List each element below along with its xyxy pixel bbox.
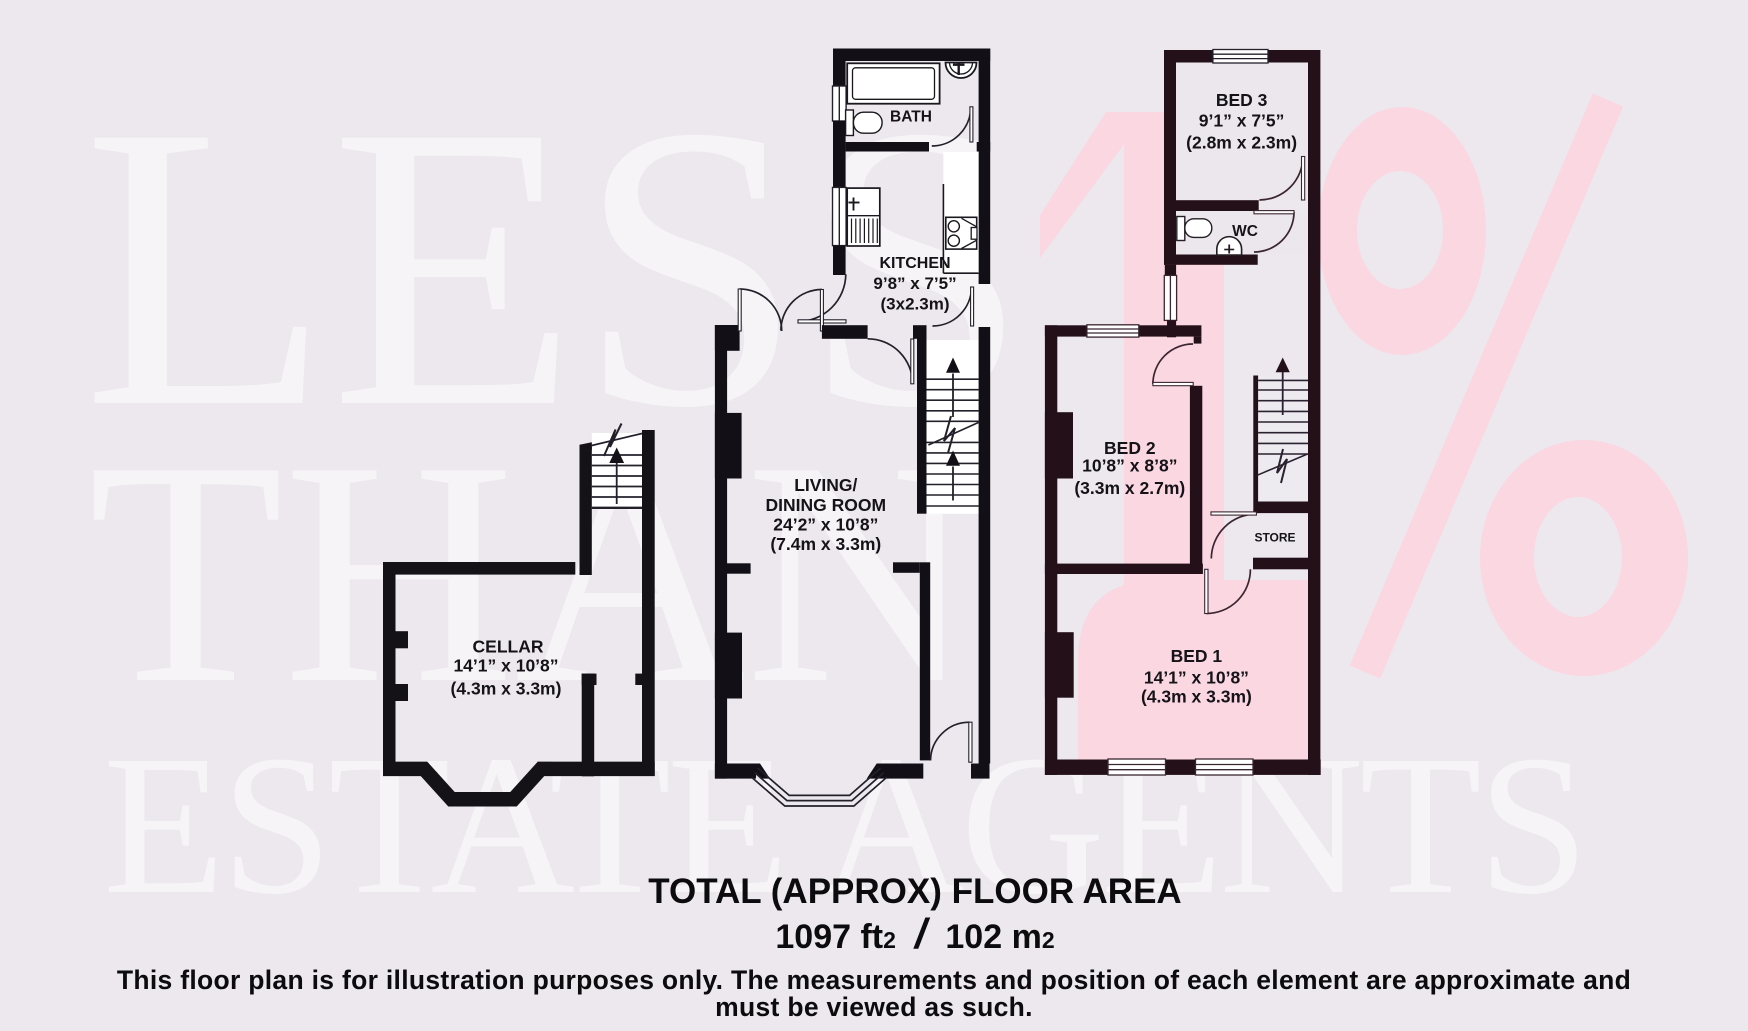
svg-text:(4.3m x 3.3m): (4.3m x 3.3m): [451, 679, 562, 699]
svg-text:24’2” x 10’8”: 24’2” x 10’8”: [773, 515, 878, 535]
svg-text:9’8” x 7’5”: 9’8” x 7’5”: [873, 274, 956, 293]
svg-text:(3.3m x 2.7m): (3.3m x 2.7m): [1074, 478, 1185, 498]
svg-text:BED 3: BED 3: [1216, 90, 1268, 110]
svg-text:(2.8m x 2.3m): (2.8m x 2.3m): [1186, 133, 1297, 153]
svg-text:WC: WC: [1232, 223, 1258, 240]
svg-text:14’1” x 10’8”: 14’1” x 10’8”: [453, 656, 558, 676]
svg-text:CELLAR: CELLAR: [473, 637, 544, 657]
svg-text:14’1” x 10’8”: 14’1” x 10’8”: [1144, 668, 1249, 688]
svg-text:(4.3m x 3.3m): (4.3m x 3.3m): [1141, 687, 1252, 707]
svg-text:BED 1: BED 1: [1171, 646, 1223, 666]
svg-text:This floor plan is for illustr: This floor plan is for illustration purp…: [117, 965, 1631, 995]
svg-text:STORE: STORE: [1254, 531, 1295, 545]
svg-text:LIVING/: LIVING/: [794, 475, 857, 495]
svg-text:(3x2.3m): (3x2.3m): [881, 295, 950, 314]
svg-text:BATH: BATH: [890, 109, 932, 126]
svg-text:(7.4m x 3.3m): (7.4m x 3.3m): [770, 534, 881, 554]
svg-text:TOTAL (APPROX) FLOOR AREA: TOTAL (APPROX) FLOOR AREA: [648, 872, 1181, 911]
svg-text:must be viewed as such.: must be viewed as such.: [715, 992, 1033, 1022]
svg-text:DINING ROOM: DINING ROOM: [766, 495, 887, 515]
svg-text:9’1” x 7’5”: 9’1” x 7’5”: [1199, 111, 1285, 131]
svg-text:1097 ft2 / 102 m2: 1097 ft2 / 102 m2: [775, 910, 1054, 957]
svg-text:KITCHEN: KITCHEN: [879, 255, 950, 272]
svg-text:10’8” x 8’8”: 10’8” x 8’8”: [1082, 456, 1177, 476]
